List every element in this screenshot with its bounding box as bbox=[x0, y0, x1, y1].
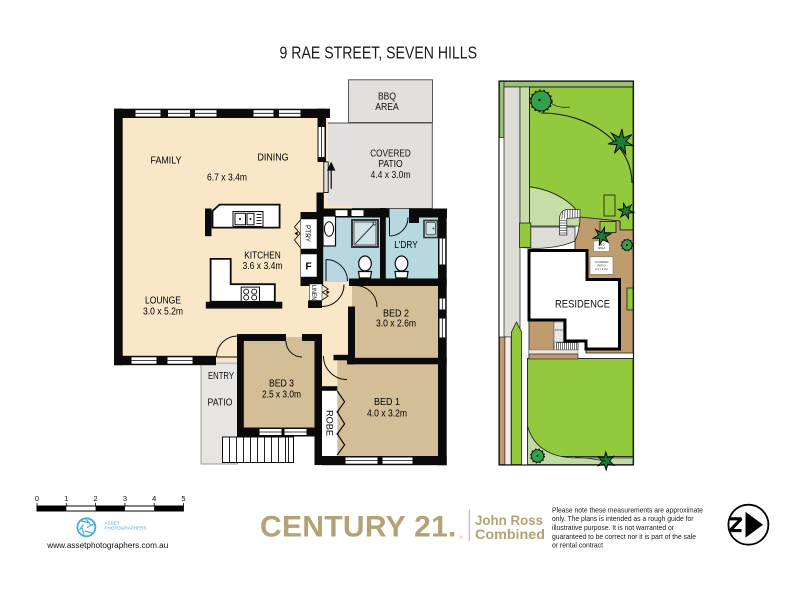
svg-text:or rental contract: or rental contract bbox=[552, 541, 603, 550]
svg-text:illustrative purpose. It is no: illustrative purpose. It is not warrante… bbox=[552, 523, 674, 532]
svg-text:PTRY: PTRY bbox=[304, 225, 313, 242]
svg-text:ENTRY: ENTRY bbox=[208, 371, 234, 382]
svg-text:4.4 x 3.0m: 4.4 x 3.0m bbox=[595, 267, 609, 271]
svg-text:BED 3: BED 3 bbox=[269, 378, 294, 389]
svg-text:5: 5 bbox=[181, 494, 185, 503]
svg-text:ROBE: ROBE bbox=[324, 410, 335, 436]
svg-text:LOUNGE: LOUNGE bbox=[145, 296, 181, 307]
svg-text:BED 1: BED 1 bbox=[374, 397, 400, 408]
svg-text:BBQ: BBQ bbox=[378, 92, 396, 103]
svg-text:2: 2 bbox=[94, 494, 98, 503]
svg-text:1: 1 bbox=[64, 494, 68, 503]
svg-text:PATIO: PATIO bbox=[208, 398, 233, 409]
svg-text:3: 3 bbox=[123, 494, 127, 503]
svg-text:Please note these measurements: Please note these measurements are appro… bbox=[552, 505, 703, 514]
svg-text:PHOTOGRAPHERS: PHOTOGRAPHERS bbox=[105, 525, 147, 530]
svg-text:PATIO: PATIO bbox=[378, 159, 403, 170]
svg-text:4.0 x 3.2m: 4.0 x 3.2m bbox=[367, 409, 407, 420]
svg-text:3.0 x 2.6m: 3.0 x 2.6m bbox=[376, 319, 416, 330]
svg-text:FAMILY: FAMILY bbox=[151, 156, 182, 167]
svg-text:PATIO: PATIO bbox=[555, 328, 564, 332]
svg-text:2.5 x 3.0m: 2.5 x 3.0m bbox=[262, 390, 301, 401]
svg-text:0: 0 bbox=[35, 494, 39, 503]
svg-text:www.assetphotographers.com.au: www.assetphotographers.com.au bbox=[46, 541, 168, 550]
svg-text:COVERED: COVERED bbox=[370, 148, 411, 159]
svg-text:LINEN: LINEN bbox=[310, 285, 317, 300]
svg-text:3.0 x 5.2m: 3.0 x 5.2m bbox=[143, 307, 183, 318]
svg-text:KITCHEN: KITCHEN bbox=[244, 250, 281, 261]
svg-text:4.4 x 3.0m: 4.4 x 3.0m bbox=[371, 170, 411, 181]
svg-text:9 RAE STREET, SEVEN HILLS: 9 RAE STREET, SEVEN HILLS bbox=[280, 43, 478, 63]
svg-text:Combined: Combined bbox=[475, 526, 545, 542]
svg-text:3.6 x 3.4m: 3.6 x 3.4m bbox=[243, 261, 283, 272]
svg-text:AREA: AREA bbox=[375, 102, 399, 113]
svg-text:RESIDENCE: RESIDENCE bbox=[555, 299, 610, 311]
svg-text:guaranteed to be correct nor i: guaranteed to be correct nor it is part … bbox=[552, 532, 696, 541]
svg-text:AREA: AREA bbox=[598, 246, 606, 250]
svg-text:L'DRY: L'DRY bbox=[394, 240, 418, 251]
svg-text:F: F bbox=[305, 262, 311, 273]
svg-text:6.7 x 3.4m: 6.7 x 3.4m bbox=[207, 173, 247, 184]
svg-text:CENTURY 21.: CENTURY 21. bbox=[260, 511, 457, 544]
svg-text:only. The plans is intended as: only. The plans is intended as a rough g… bbox=[552, 514, 694, 523]
svg-text:DINING: DINING bbox=[258, 153, 289, 164]
svg-text:4: 4 bbox=[152, 494, 156, 503]
